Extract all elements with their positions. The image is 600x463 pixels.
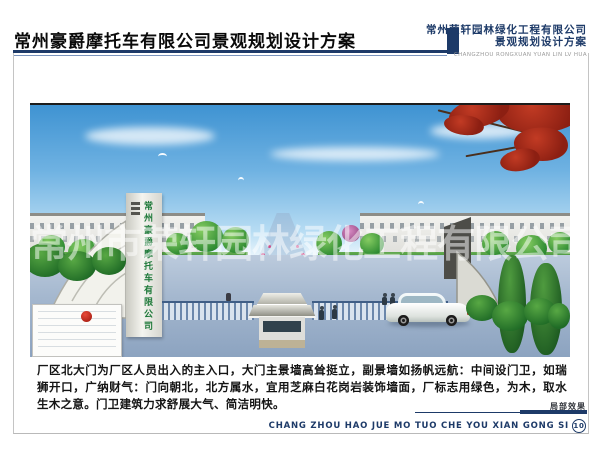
bird-icon	[238, 177, 244, 184]
page-number-badge: 10	[572, 419, 586, 433]
louver-vent	[131, 202, 140, 205]
firm-name: 常州荣轩园林绿化工程有限公司	[426, 25, 587, 37]
page-title: 常州豪爵摩托车有限公司景观规划设计方案	[14, 27, 356, 52]
bird-icon	[418, 201, 424, 208]
guard-house	[259, 317, 305, 348]
footer-pinyin-text: CHANG ZHOU HAO JUE MO TUO CHE YOU XIAN G…	[269, 421, 569, 431]
red-maple-branch	[410, 105, 570, 185]
red-stamp	[81, 311, 92, 322]
bird-icon	[158, 153, 167, 160]
pedestrian	[332, 309, 337, 319]
shrub	[492, 301, 528, 331]
shrub	[548, 303, 570, 329]
car-wheel	[446, 315, 457, 326]
firm-subtitle: 景观规划设计方案	[426, 37, 587, 49]
maple-leaves	[499, 147, 541, 173]
entrance-rendering: 常州豪爵摩托车有限公司	[30, 103, 570, 357]
louver-vent	[131, 207, 140, 210]
site-plan-inset	[32, 304, 122, 357]
car-wheel	[398, 315, 409, 326]
caption-rule-thin	[415, 412, 520, 413]
design-board-page: 常州豪爵摩托车有限公司景观规划设计方案 常州荣轩园林绿化工程有限公司 景观规划设…	[0, 0, 600, 463]
fence-left	[162, 301, 254, 320]
site-plan-drawing-lines	[38, 311, 116, 350]
pedestrian-head	[333, 305, 337, 309]
design-description: 厂区北大门为厂区人员出入的主入口，大门主景墙高耸挺立，副景墙如扬帆远航：中间设门…	[37, 362, 567, 413]
watermark: 常州市荣轩园林绿化工程有限公司	[30, 213, 570, 268]
cyclist	[226, 293, 231, 301]
guard-house-window	[263, 321, 301, 332]
guard-house-base	[259, 340, 305, 348]
guard-house-roof-upper	[256, 293, 308, 306]
footer-pinyin: CHANG ZHOU HAO JUE MO TUO CHE YOU XIAN G…	[269, 419, 586, 433]
pedestrian-head	[320, 306, 324, 310]
white-car	[386, 289, 470, 327]
cloud	[85, 127, 215, 145]
caption-rule-thick	[520, 410, 587, 414]
pedestrian	[319, 310, 324, 320]
